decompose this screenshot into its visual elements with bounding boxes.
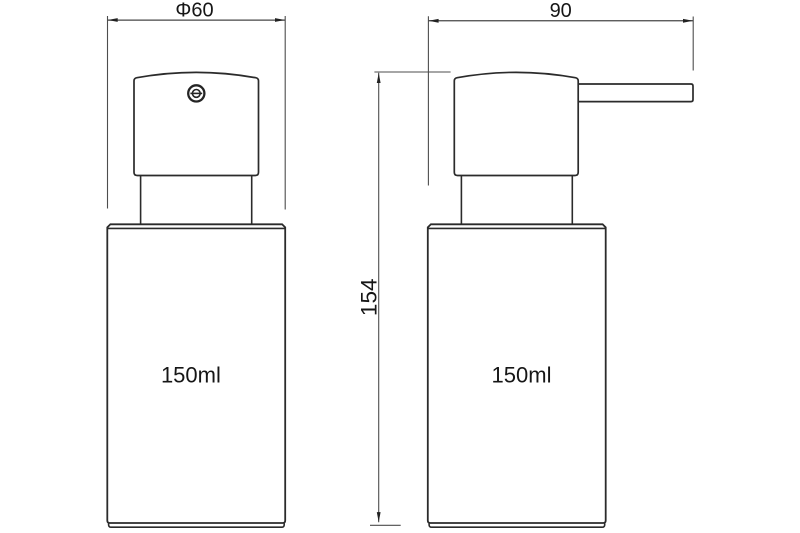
svg-text:90: 90 <box>550 0 572 22</box>
svg-text:154: 154 <box>356 279 381 317</box>
svg-text:150ml: 150ml <box>161 362 221 387</box>
svg-text:Φ60: Φ60 <box>175 0 213 22</box>
svg-text:150ml: 150ml <box>492 362 552 387</box>
